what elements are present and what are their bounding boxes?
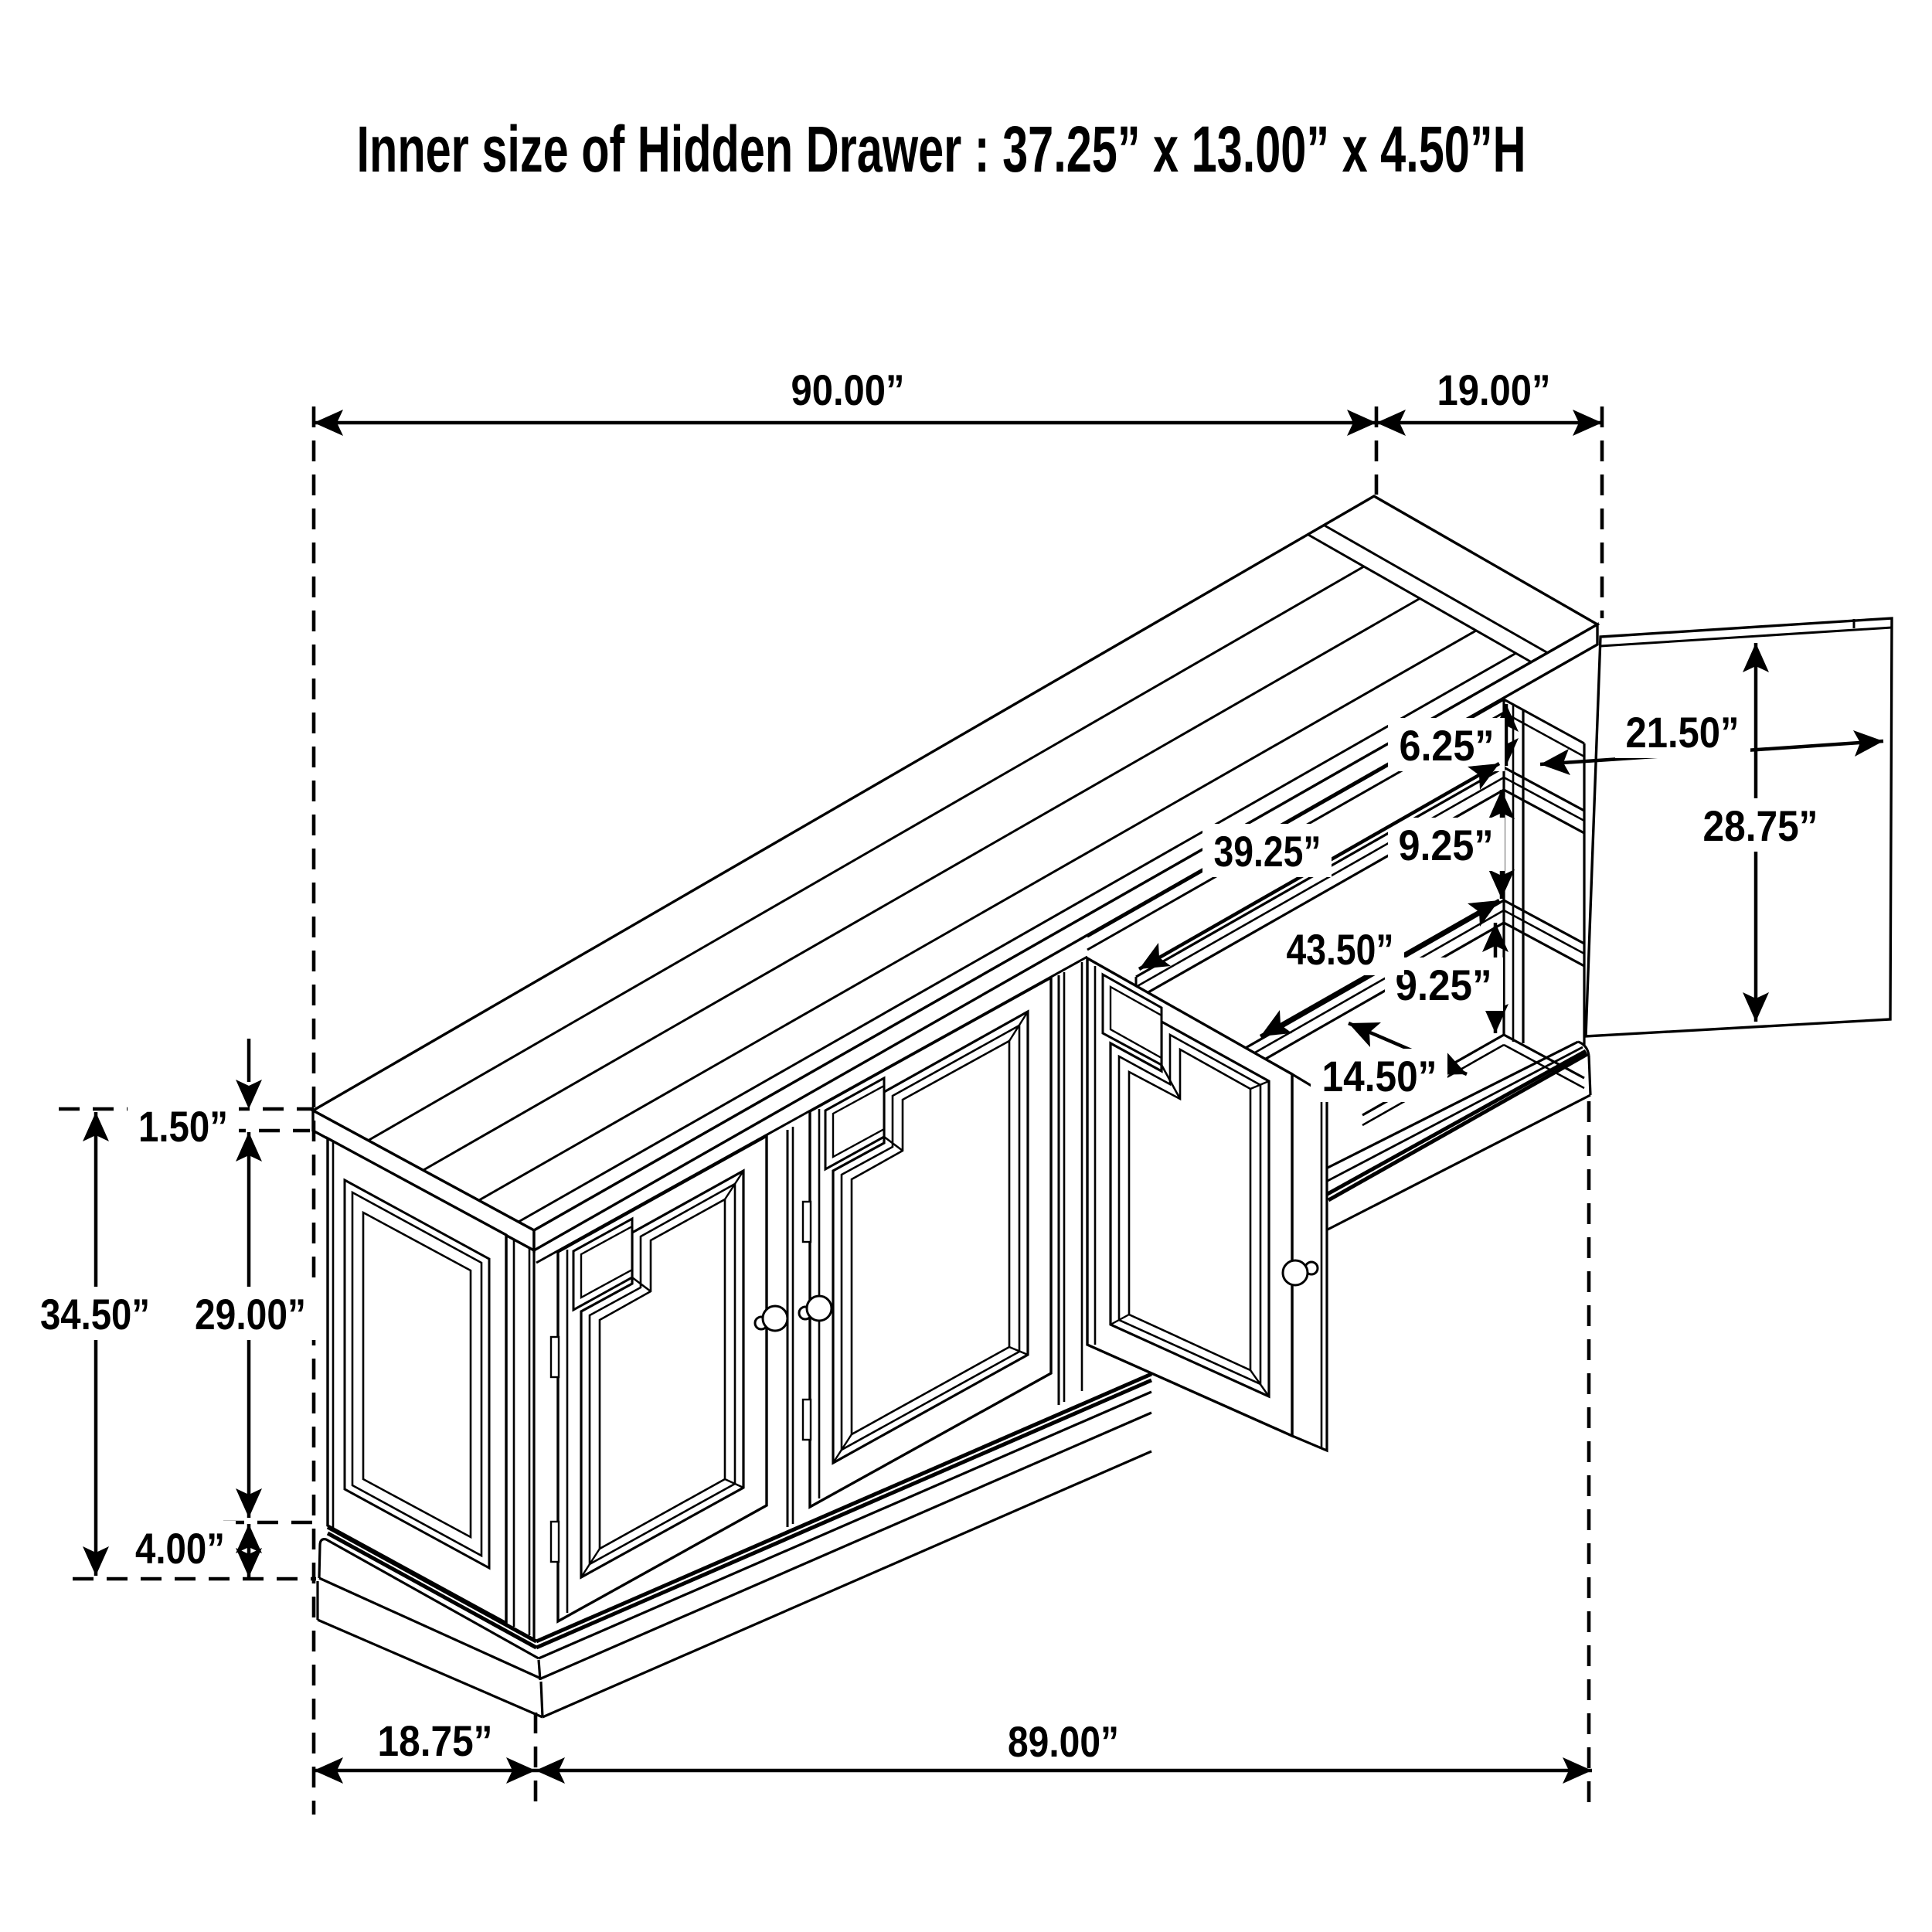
svg-text:28.75”: 28.75” [1703,801,1818,850]
svg-text:89.00”: 89.00” [1008,1717,1119,1766]
svg-text:29.00”: 29.00” [195,1290,306,1338]
svg-text:1.50”: 1.50” [138,1102,228,1151]
svg-text:9.25”: 9.25” [1396,961,1492,1009]
svg-text:19.00”: 19.00” [1437,366,1551,414]
svg-text:90.00”: 90.00” [791,366,905,414]
svg-text:4.00”: 4.00” [135,1524,225,1573]
svg-text:6.25”: 6.25” [1400,721,1495,770]
svg-text:21.50”: 21.50” [1626,708,1740,757]
svg-text:34.50”: 34.50” [40,1290,150,1338]
svg-text:14.50”: 14.50” [1322,1052,1437,1100]
svg-text:43.50”: 43.50” [1287,925,1394,974]
svg-text:Inner size of Hidden Drawer :: Inner size of Hidden Drawer : 37.25” x 1… [357,113,1526,185]
svg-text:18.75”: 18.75” [378,1716,493,1765]
svg-text:9.25”: 9.25” [1399,821,1494,869]
svg-text:39.25”: 39.25” [1214,827,1321,876]
